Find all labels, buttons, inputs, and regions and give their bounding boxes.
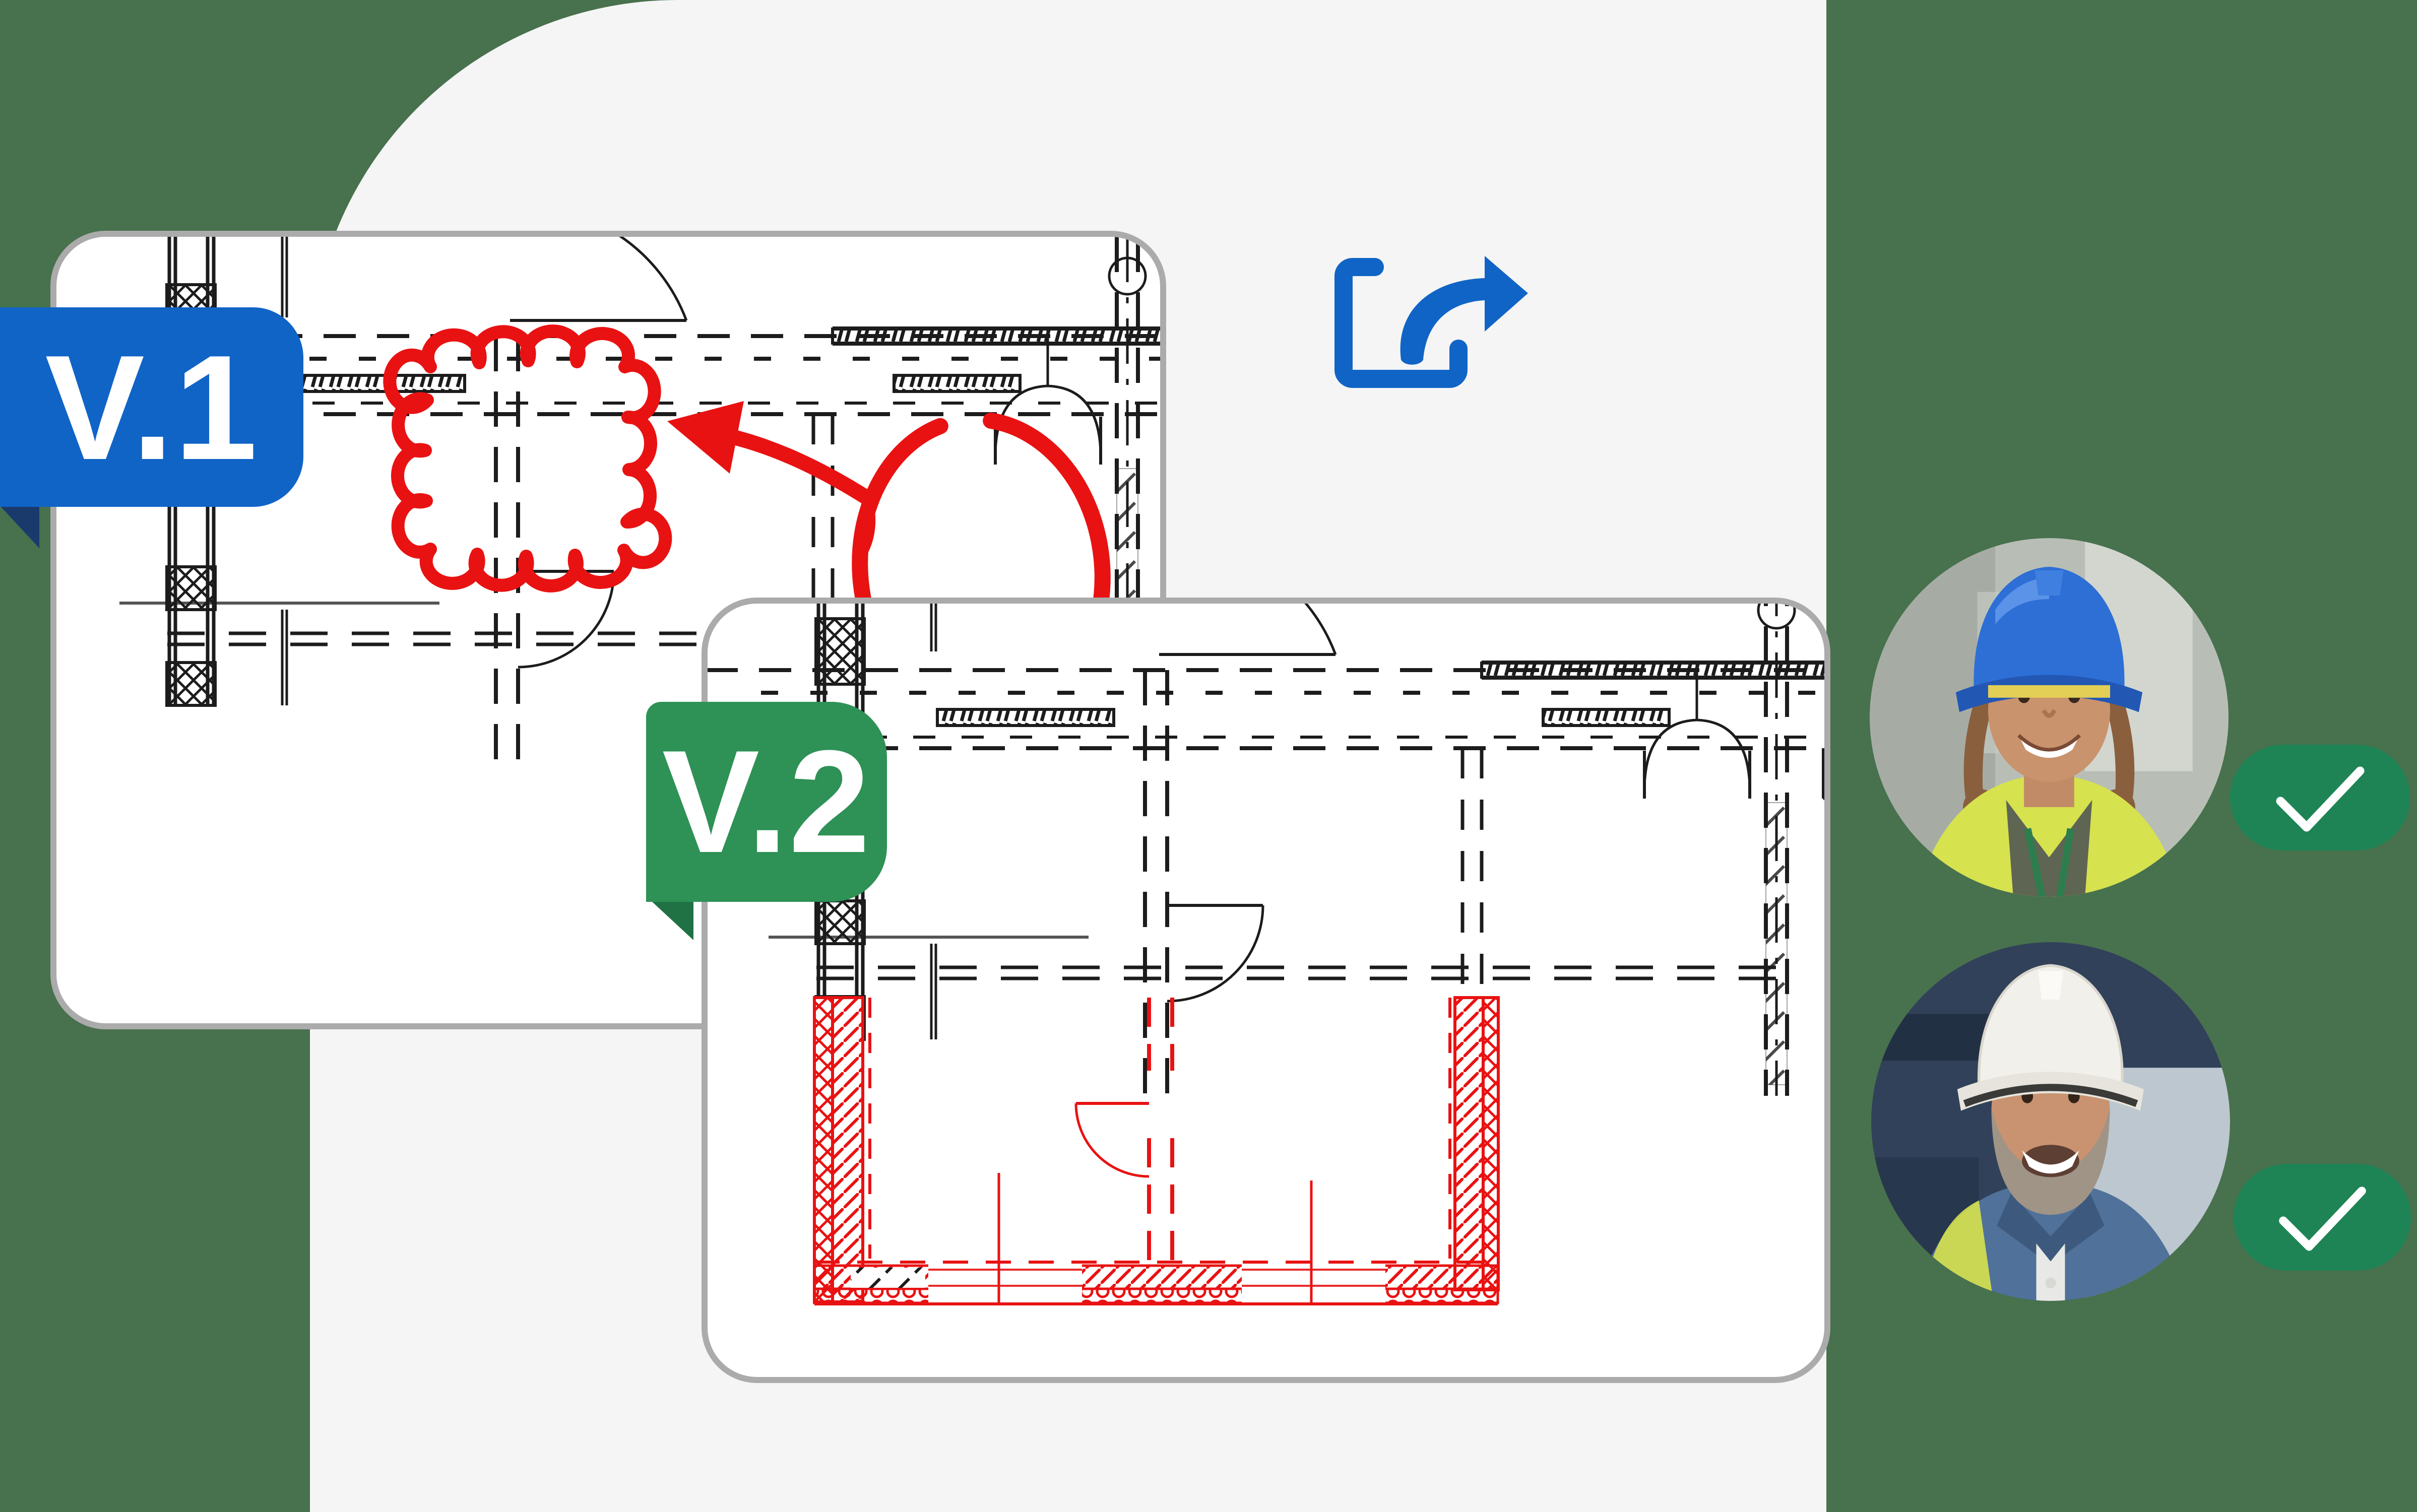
page-background: V.1 V.2: [0, 0, 2417, 1512]
checkmark-icon: [2230, 745, 2410, 850]
badge-ribbon-fold-v1: [0, 506, 39, 548]
checkmark-icon: [2234, 1164, 2411, 1271]
floorplan-drawing-v2: [708, 604, 1824, 1377]
version-badge-v2-label: V.2: [662, 718, 871, 886]
version-badge-v2: V.2: [646, 702, 887, 902]
approval-pill-2[interactable]: [2234, 1164, 2411, 1271]
share-icon[interactable]: [1324, 243, 1534, 402]
avatar-photo-woman: [1870, 538, 2229, 897]
share-icon-bracket: [1344, 267, 1458, 379]
highlighted-new-walls: [814, 998, 1498, 1305]
avatar-worker-man[interactable]: [1871, 942, 2230, 1301]
version-badge-v1-label: V.1: [45, 321, 258, 493]
avatar-worker-woman[interactable]: [1870, 538, 2229, 897]
arrow-head: [667, 401, 744, 474]
floorplan-card-v2[interactable]: [702, 598, 1830, 1383]
approval-pill-1[interactable]: [2230, 745, 2410, 850]
revision-cloud-annotation: [390, 331, 665, 586]
avatar-photo-man: [1871, 942, 2230, 1301]
arrow-annotation: [717, 433, 869, 499]
version-badge-v1: V.1: [0, 307, 303, 507]
